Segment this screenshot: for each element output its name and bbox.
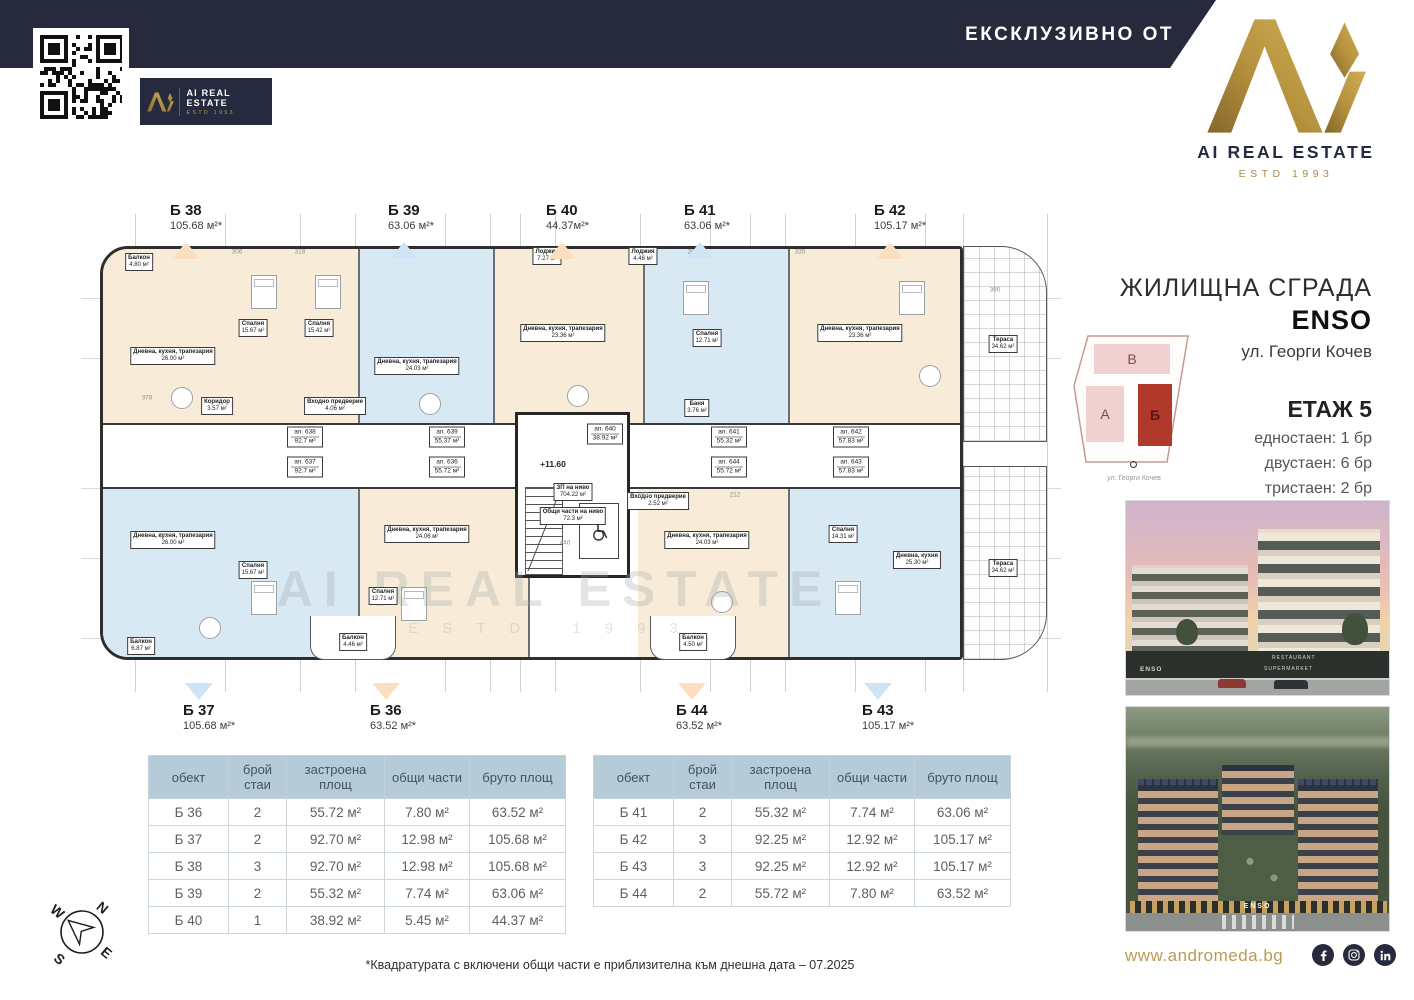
room-area: 24.06 м²	[416, 534, 439, 540]
dimension-number: 378	[142, 395, 153, 402]
table-cell: Б 39	[149, 880, 229, 907]
room-name: Спалня	[242, 563, 265, 570]
brand-logo-icon	[146, 85, 174, 119]
apartment-marker: Б 3963.06 м²*	[388, 202, 434, 232]
unit-area: 92.7 м²	[294, 438, 315, 445]
room-label: Входно предверие2.52 м²	[627, 492, 689, 510]
photo-commercial-base	[1126, 651, 1390, 678]
room-label: Коридор3.57 м²	[201, 397, 233, 415]
marker-triangle	[876, 242, 904, 259]
room-name: Балкон	[682, 635, 704, 642]
table-cell: 5.45 м²	[385, 907, 470, 934]
room-name: Дневна, кухня, трапезария	[820, 326, 899, 333]
dining-table-icon	[919, 365, 941, 387]
dimension-number: 212	[730, 492, 741, 499]
qr-code-image	[40, 35, 122, 121]
site-plan-street: ул. Георги Кочев	[1068, 475, 1200, 482]
room-area: 4.46 м²	[633, 256, 652, 262]
apartment-area: 63.06 м²*	[388, 220, 434, 232]
table-cell: 2	[229, 799, 287, 826]
room-label: Входно предверие4.06 м²	[304, 397, 366, 415]
table-header-cell: бруто площ	[470, 756, 566, 799]
marker-triangle	[172, 242, 200, 259]
bed-icon	[251, 581, 277, 615]
enso-entrance-sign: ENSO	[1126, 903, 1389, 910]
table-row: Б 36255.72 м²7.80 м²63.52 м²	[149, 799, 566, 826]
table-cell: Б 42	[594, 826, 674, 853]
room-name: Баня	[687, 401, 706, 408]
table-cell: 1	[229, 907, 287, 934]
room-name: Спалня	[696, 331, 719, 338]
room-area: 34.62 м²	[992, 568, 1015, 574]
table-header-cell: брой стаи	[674, 756, 732, 799]
apartment-area: 105.17 м²*	[874, 220, 926, 232]
marker-triangle	[864, 683, 892, 700]
table-cell: 55.72 м²	[732, 880, 830, 907]
table-cell: 12.92 м²	[830, 826, 915, 853]
room-name: Дневна, кухня, трапезария	[667, 533, 746, 540]
unit-number-label: ап. 63955.37 м²	[429, 427, 465, 448]
unit-id: ап. 639	[433, 429, 461, 438]
unit-number-label: ап. 64155.32 м²	[711, 427, 747, 448]
unit-number-label: ап. 63792.7 м²	[287, 457, 323, 478]
room-area: 15.42 м²	[308, 328, 331, 334]
table-cell: 3	[229, 853, 287, 880]
apartment-id: Б 41	[684, 202, 730, 219]
area-table-right: обектброй стаизастроена площобщи частибр…	[593, 755, 1011, 907]
table-row: Б 37292.70 м²12.98 м²105.68 м²	[149, 826, 566, 853]
photo-horizon	[1126, 737, 1390, 747]
table-header-cell: обект	[594, 756, 674, 799]
apartment-marker: Б 37105.68 м²*	[183, 702, 235, 732]
room-area: 2.52 м²	[648, 501, 667, 507]
room-area: 15.67 м²	[242, 328, 265, 334]
restaurant-sign: RESTAURANT	[1272, 655, 1316, 661]
table-cell: 92.25 м²	[732, 826, 830, 853]
room-label: Лоджия4.46 м²	[628, 247, 657, 265]
room-label: Дневна, кухня, трапезария26.00 м²	[130, 531, 215, 549]
unit-id: ап. 637	[291, 459, 319, 468]
level-info-box: ЗП на ниво 704.22 м²	[554, 483, 593, 501]
unit-number-label: ап. 64455.72 м²	[711, 457, 747, 478]
table-row: Б 40138.92 м²5.45 м²44.37 м²	[149, 907, 566, 934]
room-area: 26.00 м²	[162, 356, 185, 362]
site-block-a: А	[1086, 386, 1124, 442]
table-cell: 7.80 м²	[385, 799, 470, 826]
room-area: 4.46 м²	[343, 642, 362, 648]
unit-id: ап. 640	[591, 426, 619, 435]
wall	[788, 249, 790, 423]
table-header-cell: общи части	[830, 756, 915, 799]
table-cell: Б 40	[149, 907, 229, 934]
unit-id: ап. 643	[837, 459, 865, 468]
room-name: Дневна, кухня, трапезария	[387, 527, 466, 534]
apartment-area: 63.52 м²*	[676, 720, 722, 732]
unit-area: 57.83 м²	[839, 438, 864, 445]
table-header-cell: общи части	[385, 756, 470, 799]
marker-triangle	[390, 242, 418, 259]
room-label: Спалня14.31 м²	[829, 525, 858, 543]
unit-id: ап. 644	[715, 459, 743, 468]
table-row: Б 42392.25 м²12.92 м²105.17 м²	[594, 826, 1011, 853]
room-area: 4.80 м²	[129, 262, 148, 268]
dining-table-icon	[567, 385, 589, 407]
table-cell: Б 36	[149, 799, 229, 826]
unit-area: 57.83 м²	[839, 468, 864, 475]
bed-icon	[899, 281, 925, 315]
area-table-left: обектброй стаизастроена площобщи частибр…	[148, 755, 566, 934]
compass-e: E	[98, 943, 115, 961]
table-cell: 63.52 м²	[915, 880, 1011, 907]
site-plan: В А Б ул. Георги Кочев	[1068, 330, 1200, 478]
table-cell: Б 38	[149, 853, 229, 880]
apartment-marker: Б 4163.06 м²*	[684, 202, 730, 232]
table-cell: 7.74 м²	[830, 799, 915, 826]
badge-brand-name: AI REAL ESTATE	[186, 88, 266, 108]
supermarket-sign: SUPERMARKET	[1264, 666, 1313, 672]
room-name: Дневна, кухня, трапезария	[377, 359, 456, 366]
table-cell: 44.37 м²	[470, 907, 566, 934]
table-cell: Б 43	[594, 853, 674, 880]
room-label: Дневна, кухня, трапезария24.03 м²	[374, 357, 459, 375]
table-cell: 55.32 м²	[732, 799, 830, 826]
apartment-id: Б 42	[874, 202, 926, 219]
apartment-id: Б 39	[388, 202, 434, 219]
table-header-cell: застроена площ	[732, 756, 830, 799]
table-row: Б 43392.25 м²12.92 м²105.17 м²	[594, 853, 1011, 880]
room-label: Дневна, кухня, трапезария24.03 м²	[664, 531, 749, 549]
wall	[493, 249, 495, 423]
table-row: Б 44255.72 м²7.80 м²63.52 м²	[594, 880, 1011, 907]
dining-table-icon	[419, 393, 441, 415]
table-cell: 92.70 м²	[287, 853, 385, 880]
table-cell: 63.06 м²	[915, 799, 1011, 826]
dimension-number: 440	[560, 540, 571, 547]
room-label: Дневна, кухня25.30 м²	[893, 551, 941, 569]
table-cell: Б 41	[594, 799, 674, 826]
brand-badge: AI REAL ESTATE ESTD 1993	[140, 78, 272, 125]
table-cell: 38.92 м²	[287, 907, 385, 934]
crosswalk	[1222, 915, 1294, 929]
room-label: Балкон4.46 м²	[339, 633, 367, 651]
room-area: 12.71 м²	[696, 338, 719, 344]
badge-brand-estd: ESTD 1993	[186, 110, 266, 116]
room-name: Лоджия	[631, 249, 654, 256]
brochure-page: ЕКСКЛУЗИВНО ОТ AI REAL ESTATE ESTD 1993	[0, 0, 1414, 1000]
apartment-marker: Б 38105.68 м²*	[170, 202, 222, 232]
tree	[1176, 619, 1198, 645]
unit-area: 38.92 м²	[593, 435, 618, 442]
table-header-cell: брой стаи	[229, 756, 287, 799]
room-area: 6.87 м²	[131, 646, 150, 652]
unit-area: 92.7 м²	[294, 468, 315, 475]
facebook-icon[interactable]	[1312, 944, 1334, 966]
marker-triangle	[185, 683, 213, 700]
website-link[interactable]: www.andromeda.bg	[1125, 946, 1283, 966]
apartment-area: 105.68 м²*	[183, 720, 235, 732]
site-block-v: В	[1094, 344, 1170, 374]
room-name: Спалня	[242, 321, 265, 328]
table-cell: 12.98 м²	[385, 826, 470, 853]
table-cell: 12.92 м²	[830, 853, 915, 880]
unit-number-label: ап. 63655.72 м²	[429, 457, 465, 478]
dimension-number: 318	[295, 249, 306, 256]
room-label: Спалня15.67 м²	[239, 319, 268, 337]
marker-triangle	[678, 683, 706, 700]
dimension-number: 453	[638, 492, 649, 499]
table-cell: 55.32 м²	[287, 880, 385, 907]
wall	[643, 249, 645, 423]
tree	[1342, 613, 1368, 645]
room-name: Спалня	[832, 527, 855, 534]
apartment-marker: Б 42105.17 м²*	[874, 202, 926, 232]
room-area: 23.36 м²	[849, 333, 872, 339]
room-label: Балкон4.50 м²	[679, 633, 707, 651]
car	[1274, 680, 1308, 689]
room-area: 3.57 м²	[207, 406, 226, 412]
table-row: Б 39255.32 м²7.74 м²63.06 м²	[149, 880, 566, 907]
room-label: Дневна, кухня, трапезария23.36 м²	[520, 324, 605, 342]
dining-table-icon	[711, 591, 733, 613]
table-cell: 63.52 м²	[470, 799, 566, 826]
enso-sign: ENSO	[1140, 666, 1162, 673]
room-name: Дневна, кухня, трапезария	[523, 326, 602, 333]
room-name: Коридор	[204, 399, 230, 406]
table-cell: Б 37	[149, 826, 229, 853]
unit-area: 55.72 м²	[435, 468, 460, 475]
apartment-marker: Б 4463.52 м²*	[676, 702, 722, 732]
room-label: Балкон6.87 м²	[127, 637, 155, 655]
table-header-cell: обект	[149, 756, 229, 799]
apartment-marker: Б 4044.37м²*	[546, 202, 589, 232]
unit-number-label: ап. 64257.83 м²	[833, 427, 869, 448]
table-cell: 63.06 м²	[470, 880, 566, 907]
social-icons	[1312, 944, 1396, 966]
dining-table-icon	[171, 387, 193, 409]
room-name: Дневна, кухня, трапезария	[133, 533, 212, 540]
apartment-id: Б 40	[546, 202, 589, 219]
table-cell: 105.17 м²	[915, 853, 1011, 880]
table-cell: 2	[229, 880, 287, 907]
room-label: Тераса34.62 м²	[989, 559, 1018, 577]
marker-triangle	[686, 242, 714, 259]
dimension-number: 306	[232, 249, 243, 256]
site-block-b-highlighted: Б	[1138, 384, 1172, 446]
apartment-id: Б 38	[170, 202, 222, 219]
apartment-id: Б 44	[676, 702, 722, 719]
table-header-cell: застроена площ	[287, 756, 385, 799]
dimension-number: 463	[158, 533, 169, 540]
dimension-number: 390	[990, 287, 1001, 294]
unit-number-label: ап. 64357.83 м²	[833, 457, 869, 478]
table-cell: 2	[229, 826, 287, 853]
apartment-area: 63.52 м²*	[370, 720, 416, 732]
unit-id: ап. 638	[291, 429, 319, 438]
compass-rose: N E S W	[36, 886, 128, 983]
room-name: Дневна, кухня	[896, 553, 938, 560]
room-area: 26.00 м²	[162, 540, 185, 546]
room-label: Тераса34.62 м²	[989, 335, 1018, 353]
table-cell: 92.70 м²	[287, 826, 385, 853]
room-name: Балкон	[130, 639, 152, 646]
bed-icon	[835, 581, 861, 615]
photo-building-left	[1138, 785, 1218, 903]
room-area: 15.67 м²	[242, 570, 265, 576]
unit-area: 55.37 м²	[435, 438, 460, 445]
table-cell: 12.98 м²	[385, 853, 470, 880]
bed-icon	[251, 275, 277, 309]
apartment-marker: Б 43105.17 м²*	[862, 702, 914, 732]
apartment-area: 105.68 м²*	[170, 220, 222, 232]
table-row: Б 38392.70 м²12.98 м²105.68 м²	[149, 853, 566, 880]
floor-plan: +11.60 ЗП на ниво 704.22 м² Общи части н…	[95, 238, 1050, 668]
room-label: Спалня15.42 м²	[305, 319, 334, 337]
stat-three-room: тристаен: 2 бр	[1042, 480, 1372, 498]
apartment-id: Б 37	[183, 702, 235, 719]
room-label: Спалня12.71 м²	[693, 329, 722, 347]
apartment-area: 44.37м²*	[546, 220, 589, 232]
room-label: Дневна, кухня, трапезария26.00 м²	[130, 347, 215, 365]
room-name: Спалня	[308, 321, 331, 328]
site-plan-entrance-icon	[1130, 461, 1137, 468]
dining-table-icon	[199, 617, 221, 639]
car	[1218, 679, 1246, 688]
apartment-area: 63.06 м²*	[684, 220, 730, 232]
table-header-cell: бруто площ	[915, 756, 1011, 799]
room-label: Спалня15.67 м²	[239, 561, 268, 579]
room-area: 3.76 м²	[687, 408, 706, 414]
apartment-marker: Б 3663.52 м²*	[370, 702, 416, 732]
solar-roof	[1298, 779, 1378, 785]
compass-s: S	[51, 950, 68, 968]
compass-n: N	[94, 898, 112, 917]
table-cell: 55.72 м²	[287, 799, 385, 826]
table-cell: 7.74 м²	[385, 880, 470, 907]
table-cell: Б 44	[594, 880, 674, 907]
marker-triangle	[548, 242, 576, 259]
room-name: Тераса	[992, 561, 1015, 568]
room-name: Дневна, кухня, трапезария	[133, 349, 212, 356]
room-label: Дневна, кухня, трапезария23.36 м²	[817, 324, 902, 342]
room-label: Спалня12.71 м²	[369, 587, 398, 605]
table-cell: 105.17 м²	[915, 826, 1011, 853]
exclusive-label: ЕКСКЛУЗИВНО ОТ	[965, 24, 1174, 46]
room-label: Дневна, кухня, трапезария24.06 м²	[384, 525, 469, 543]
table-row: Б 41255.32 м²7.74 м²63.06 м²	[594, 799, 1011, 826]
instagram-icon[interactable]	[1343, 944, 1365, 966]
apartment-b43	[788, 489, 960, 657]
unit-id: ап. 641	[715, 429, 743, 438]
room-area: 4.50 м²	[683, 642, 702, 648]
table-cell: 2	[674, 880, 732, 907]
unit-id: ап. 642	[837, 429, 865, 438]
photo-building-right	[1298, 785, 1378, 903]
table-cell: 7.80 м²	[830, 880, 915, 907]
unit-number-label: ап. 63892.7 м²	[287, 427, 323, 448]
photo-building-center	[1222, 765, 1294, 837]
table-cell: 3	[674, 853, 732, 880]
apartment-area: 105.17 м²*	[862, 720, 914, 732]
room-area: 4.06 м²	[325, 406, 344, 412]
room-name: Балкон	[128, 255, 150, 262]
photo-courtyard	[1218, 835, 1298, 901]
level-mark: +11.60	[540, 459, 566, 469]
apartment-id: Б 36	[370, 702, 416, 719]
building-type: ЖИЛИЩНА СГРАДА	[1042, 274, 1372, 303]
room-name: Тераса	[992, 337, 1015, 344]
room-name: Входно предверие	[307, 399, 363, 406]
room-label: Балкон4.80 м²	[125, 253, 153, 271]
room-label: Баня3.76 м²	[684, 399, 709, 417]
table-cell: 3	[674, 826, 732, 853]
unit-area: 55.32 м²	[717, 438, 742, 445]
building-render-street-photo: RESTAURANT SUPERMARKET ENSO	[1125, 500, 1390, 696]
unit-number-label: ап. 64038.92 м²	[587, 424, 623, 445]
linkedin-icon[interactable]	[1374, 944, 1396, 966]
room-area: 24.03 м²	[696, 540, 719, 546]
room-name: Балкон	[342, 635, 364, 642]
solar-roof	[1138, 779, 1218, 785]
table-cell: 92.25 м²	[732, 853, 830, 880]
dimension-number: 335	[795, 249, 806, 256]
table-cell: 2	[674, 799, 732, 826]
brand-name: AI REAL ESTATE	[1180, 142, 1392, 163]
room-area: 25.30 м²	[906, 560, 929, 566]
room-area: 34.62 м²	[992, 344, 1015, 350]
area-footnote: *Квадратурата с включени общи части е пр…	[330, 958, 890, 972]
room-name: Спалня	[372, 589, 395, 596]
brand-estd: ESTD 1993	[1180, 168, 1392, 180]
room-area: 23.36 м²	[552, 333, 575, 339]
bed-icon	[401, 587, 427, 621]
unit-area: 55.72 м²	[717, 468, 742, 475]
building-render-aerial-photo: ENSO	[1125, 706, 1390, 932]
photo-road	[1126, 678, 1390, 696]
bed-icon	[315, 275, 341, 309]
table-cell: 105.68 м²	[470, 853, 566, 880]
room-area: 12.71 м²	[372, 596, 395, 602]
bed-icon	[683, 281, 709, 315]
marker-triangle	[372, 683, 400, 700]
unit-id: ап. 636	[433, 459, 461, 468]
wall	[788, 489, 790, 657]
room-area: 14.31 м²	[832, 534, 855, 540]
brand-logo: AI REAL ESTATE ESTD 1993	[1180, 14, 1392, 204]
qr-code	[33, 28, 129, 128]
room-area: 24.03 м²	[406, 366, 429, 372]
table-cell: 105.68 м²	[470, 826, 566, 853]
level-info-box: Общи части на ниво 72.3 м²	[540, 507, 606, 525]
brand-logo-monogram	[1201, 14, 1371, 138]
apartment-id: Б 43	[862, 702, 914, 719]
